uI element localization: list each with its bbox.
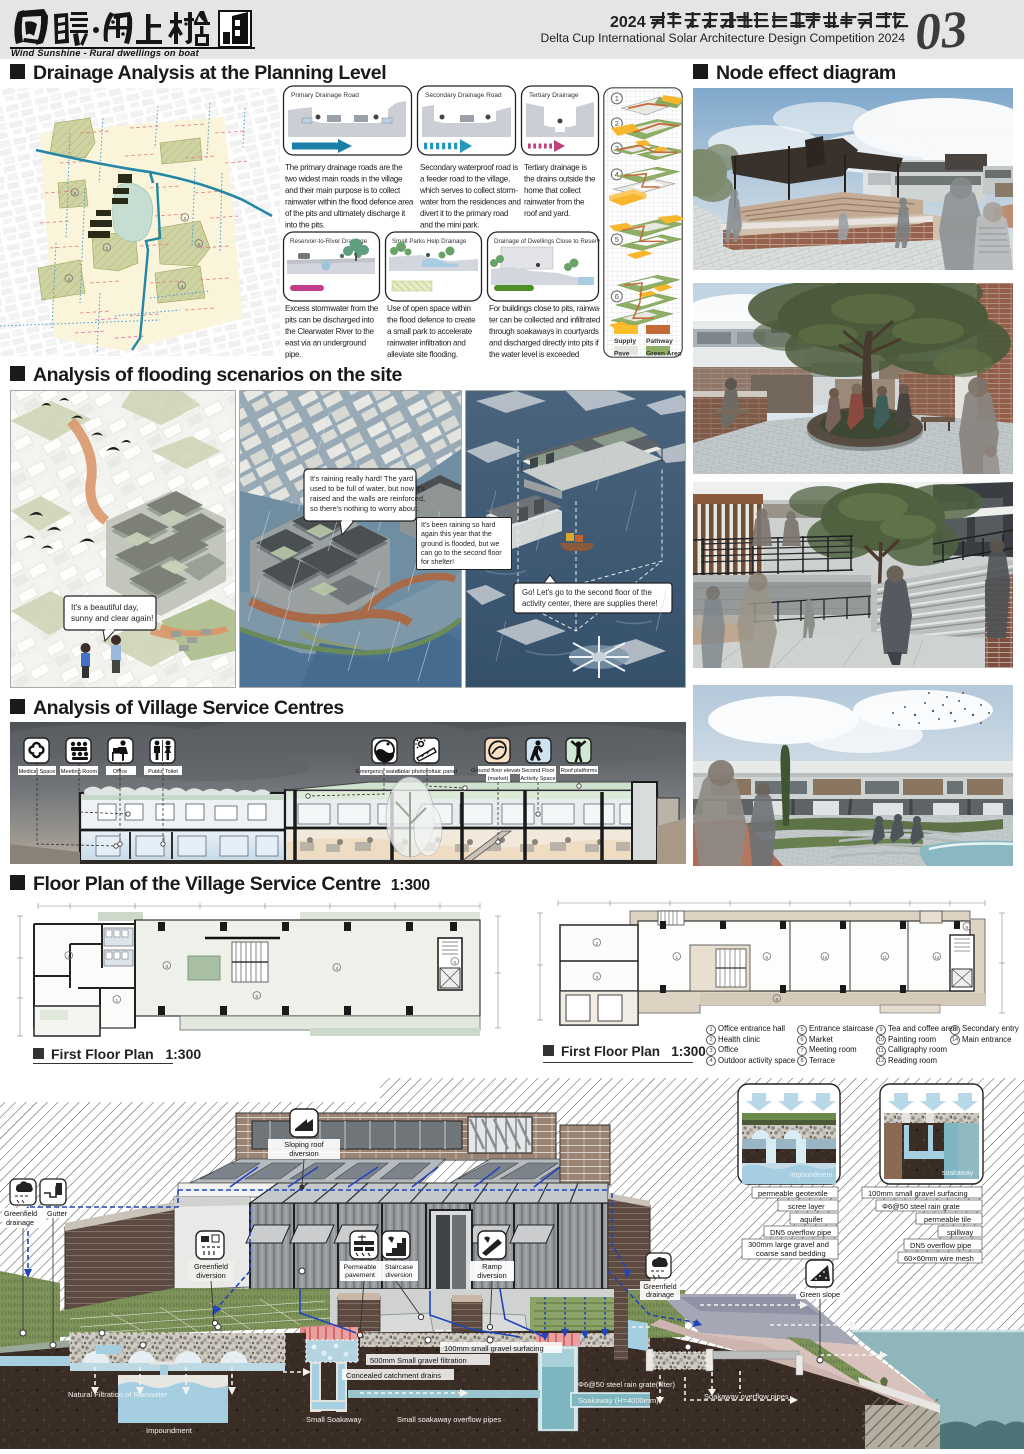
svg-text:Activity Space: Activity Space	[520, 776, 555, 782]
svg-text:It's a beautiful day,: It's a beautiful day,	[71, 603, 138, 612]
svg-text:100mm small gravel surfacing: 100mm small gravel surfacing	[444, 1344, 544, 1353]
svg-text:2: 2	[615, 119, 619, 128]
svg-text:It's raining really hard! The: It's raining really hard! The yard	[310, 474, 413, 483]
svg-text:coarse sand bedding: coarse sand bedding	[756, 1249, 826, 1258]
svg-text:soakaway: soakaway	[942, 1170, 974, 1177]
svg-text:DN5 overflow pipe: DN5 overflow pipe	[910, 1241, 971, 1250]
svg-text:permeable geotextile: permeable geotextile	[758, 1189, 828, 1198]
svg-text:4: 4	[335, 966, 338, 972]
svg-text:Tertiary Drainage: Tertiary Drainage	[529, 92, 579, 99]
svg-text:raised and the walls are reinf: raised and the walls are reinforced,	[310, 494, 425, 503]
svg-text:Small Soakaway: Small Soakaway	[306, 1415, 362, 1424]
svg-text:60×60mm wire mesh: 60×60mm wire mesh	[904, 1254, 974, 1263]
svg-text:permeable tile: permeable tile	[924, 1215, 971, 1224]
svg-text:500mm Small gravel filtration: 500mm Small gravel filtration	[370, 1356, 467, 1365]
svg-text:10: 10	[822, 955, 827, 960]
svg-text:3: 3	[67, 277, 70, 283]
svg-text:Impoundment: Impoundment	[146, 1426, 193, 1435]
svg-text:5: 5	[453, 960, 456, 966]
svg-text:12: 12	[934, 955, 939, 960]
svg-text:Φ6@50 steel rain grate: Φ6@50 steel rain grate	[882, 1202, 960, 1211]
svg-text:Soakaway overflow pipes: Soakaway overflow pipes	[704, 1392, 789, 1401]
svg-text:2: 2	[595, 941, 598, 947]
svg-text:4: 4	[180, 284, 183, 290]
svg-text:Ground floor elevated: Ground floor elevated	[471, 768, 525, 774]
svg-text:Go! Let's go to the second flo: Go! Let's go to the second floor of the	[522, 588, 652, 597]
svg-text:Use of open space within the f: Use of open space within the flood defen…	[387, 304, 477, 359]
svg-text:Φ6@50 steel rain grate(filter): Φ6@50 steel rain grate(filter)	[578, 1380, 675, 1389]
svg-text:Primary Drainage Road: Primary Drainage Road	[291, 92, 359, 99]
svg-text:2024: 2024	[610, 14, 646, 31]
svg-text:Supply: Supply	[614, 338, 636, 345]
svg-text:2: 2	[67, 954, 70, 960]
svg-text:11: 11	[883, 955, 888, 960]
svg-text:3: 3	[165, 964, 168, 970]
svg-text:5: 5	[255, 994, 258, 1000]
svg-text:pavement: pavement	[345, 1272, 375, 1279]
svg-text:Soakaway (H=4000mm): Soakaway (H=4000mm)	[578, 1396, 659, 1405]
svg-text:(market): (market)	[488, 776, 509, 782]
svg-text:Secondary Drainage Road: Secondary Drainage Road	[425, 92, 502, 99]
svg-text:Natural Filtration of Rainwate: Natural Filtration of Rainwater	[68, 1390, 168, 1399]
svg-text:Secondary waterproof road is a: Secondary waterproof road is a feeder ro…	[419, 163, 523, 230]
svg-text:spillway: spillway	[947, 1228, 974, 1237]
svg-text:6: 6	[73, 191, 76, 197]
svg-text:1: 1	[105, 246, 108, 252]
svg-text:Gutter: Gutter	[47, 1209, 68, 1218]
svg-text:diversion: diversion	[385, 1272, 412, 1279]
svg-text:Pave: Pave	[614, 351, 630, 358]
svg-text:Small soakaway overflow pipes: Small soakaway overflow pipes	[397, 1415, 501, 1424]
svg-text:diversion: diversion	[289, 1149, 319, 1158]
svg-text:3: 3	[615, 144, 619, 153]
svg-text:Green Area: Green Area	[646, 351, 682, 358]
svg-text:Greenfield: Greenfield	[194, 1262, 228, 1271]
svg-text:Concealed catchment drains: Concealed catchment drains	[346, 1371, 441, 1380]
svg-text:3: 3	[595, 975, 598, 981]
svg-text:Excess stormwater from the pit: Excess stormwater from the pits can be d…	[285, 304, 380, 359]
svg-text:Drainage of Dwellings Close to: Drainage of Dwellings Close to Reservoir…	[494, 238, 600, 245]
svg-text:activity center, there are sup: activity center, there are supplies ther…	[522, 599, 658, 608]
svg-text:Ramp: Ramp	[482, 1262, 502, 1271]
svg-text:DN5 overflow pipe: DN5 overflow pipe	[770, 1228, 831, 1237]
svg-text:drainage: drainage	[646, 1290, 674, 1299]
svg-text:4: 4	[615, 170, 619, 179]
svg-text:Pathway: Pathway	[646, 338, 673, 345]
svg-text:used to be full of water, but: used to be full of water, but now it's	[310, 484, 425, 493]
svg-text:impoundment: impoundment	[790, 1172, 832, 1179]
svg-text:diversion: diversion	[196, 1271, 226, 1280]
svg-text:so there's nothing to worry ab: so there's nothing to worry about.	[310, 504, 419, 513]
svg-text:6: 6	[615, 292, 619, 301]
svg-text:5: 5	[197, 242, 200, 248]
svg-text:diversion: diversion	[477, 1271, 507, 1280]
svg-text:Green slope: Green slope	[800, 1290, 840, 1299]
svg-text:300mm large gravel and: 300mm large gravel and	[748, 1240, 829, 1249]
svg-text:6: 6	[765, 955, 768, 961]
svg-text:drainage: drainage	[6, 1218, 34, 1227]
svg-text:The primary drainage roads are: The primary drainage roads are the two w…	[285, 163, 415, 230]
svg-text:scree layer: scree layer	[788, 1202, 825, 1211]
svg-text:Roof platforms: Roof platforms	[561, 768, 598, 774]
svg-text:sunny and clear again!: sunny and clear again!	[71, 614, 153, 623]
svg-text:Permeable: Permeable	[344, 1264, 377, 1271]
svg-text:2: 2	[183, 216, 186, 222]
svg-text:1: 1	[615, 94, 619, 103]
svg-text:aquifer: aquifer	[800, 1215, 823, 1224]
svg-text:Staircase: Staircase	[385, 1264, 414, 1271]
svg-text:9: 9	[965, 925, 968, 931]
svg-text:For buildings close to pits, r: For buildings close to pits, rainwa- ter…	[489, 304, 600, 359]
svg-text:5: 5	[615, 235, 619, 244]
svg-text:1: 1	[115, 998, 118, 1004]
svg-text:Second Floor: Second Floor	[521, 768, 554, 774]
svg-text:Greenfield: Greenfield	[4, 1209, 37, 1218]
svg-text:1: 1	[675, 955, 678, 961]
svg-text:100mm small gravel surfacing: 100mm small gravel surfacing	[868, 1189, 968, 1198]
svg-text:8: 8	[775, 997, 778, 1003]
svg-text:Tertiary drainage is the drain: Tertiary drainage is the drains outside …	[524, 163, 597, 218]
svg-text:Sloping roof: Sloping roof	[284, 1140, 324, 1149]
